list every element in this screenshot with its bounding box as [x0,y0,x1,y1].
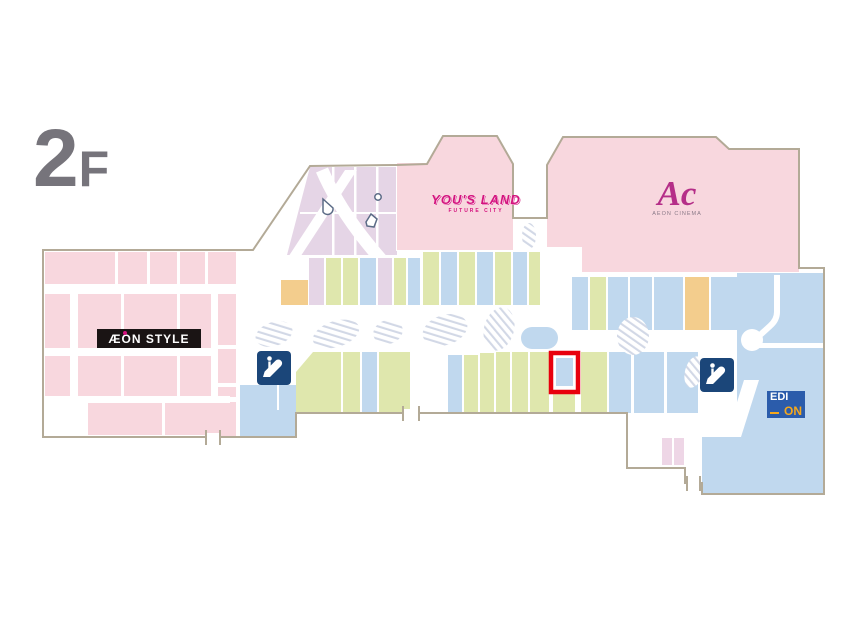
aeon-cinema-sublabel: AEON CINEMA [634,211,720,217]
walkway-shape [479,304,519,354]
shop-unit [240,385,296,438]
floor-map-canvas [0,0,855,628]
edion-logo-bar [770,412,779,414]
walkway-shape [418,309,471,352]
walkway-shape [617,317,649,355]
floor-label: 2 F [33,118,107,200]
shop-unit [530,352,549,413]
walkway-shape [309,314,363,354]
shop-row-upper-right [423,252,540,305]
shop-unit [378,258,392,305]
walkway-shape [521,327,558,349]
walkway-shape [45,402,88,435]
walkway-shape [218,383,236,387]
aeon-cinema-monogram: Ac [634,176,720,211]
shop-unit [590,277,606,330]
shop-row-cinema [572,277,737,330]
walkway-shape [177,252,180,284]
shop-unit [513,252,527,305]
walkway-shape [741,329,763,351]
escalator-icon [257,351,291,385]
shop-unit [459,252,475,305]
edion-label-bottom: ON [784,406,802,416]
shop-unit [495,252,511,305]
shop-unit [662,438,672,465]
aeon-style-label: ÆON STYLE [108,332,189,346]
walkway-shape [115,252,118,284]
shop-unit [343,352,360,413]
shop-unit [480,353,494,413]
walkway-shape [70,294,78,396]
shop-row-upper-left [281,258,420,305]
floor-number: 2 [33,118,77,200]
edion-label-top: EDI [770,393,802,402]
walkway-seating-areas [521,327,558,349]
shop-unit [685,277,709,330]
walkway-shape [147,252,150,284]
shop-unit [362,352,377,413]
yous-land-sublabel: FUTURE CITY [420,208,532,214]
aeon-style-logo[interactable]: ÆON STYLE [97,329,201,348]
shop-unit [326,258,341,305]
shop-unit [441,252,457,305]
yous-land-logo[interactable]: YOU'S LAND FUTURE CITY [420,192,532,214]
shop-unit [711,277,737,330]
walkway-shape [162,403,165,435]
walkway-shape [45,396,230,403]
shop-unit [464,355,478,413]
shop-unit [296,352,341,413]
shop-unit [394,258,406,305]
yous-land-label: YOU'S LAND [420,192,532,207]
walkway-shape [522,223,536,249]
shop-unit [477,252,493,305]
shop-unit [281,280,308,305]
walkway-shape [218,345,236,349]
aeon-logo-dot-icon [123,331,127,335]
walkway-shape [354,167,357,255]
walkway-shape [758,343,824,348]
highlighted-shop-unit[interactable] [551,353,578,392]
shop-unit [654,277,683,330]
aeon-cinema-logo[interactable]: Ac AEON CINEMA [634,176,720,217]
shop-unit [609,352,631,413]
shop-unit [529,252,540,305]
shop-unit [309,258,324,305]
shop-unit [572,277,588,330]
shop-unit [423,252,439,305]
walkway-shape [252,317,296,352]
edion-logo[interactable]: EDI ON [767,391,805,418]
shop-unit [634,352,664,413]
walkway-shape [211,294,218,396]
walkway-shape [205,252,208,284]
shop-unit [512,352,528,413]
small-units-bottom-right [662,438,684,465]
shop-unit [360,258,376,305]
walkway-shape [370,316,406,348]
shop-unit [674,438,684,465]
escalator-icon [700,358,734,392]
walkway-shape [45,284,236,294]
walkway-shape [277,385,279,410]
walkway-shape [376,167,379,255]
shop-unit [581,352,607,413]
shop-unit [343,258,358,305]
floor-map-2f: 2 F ÆON STYLE YOU'S LAND FUTURE CITY Ac … [0,0,855,628]
shop-unit [496,352,510,413]
shop-unit [448,355,462,413]
floor-suffix: F [79,144,108,194]
walkway-shape [218,397,236,402]
shop-unit [379,352,410,413]
shop-unit [408,258,420,305]
shop-row-lower [296,352,698,413]
